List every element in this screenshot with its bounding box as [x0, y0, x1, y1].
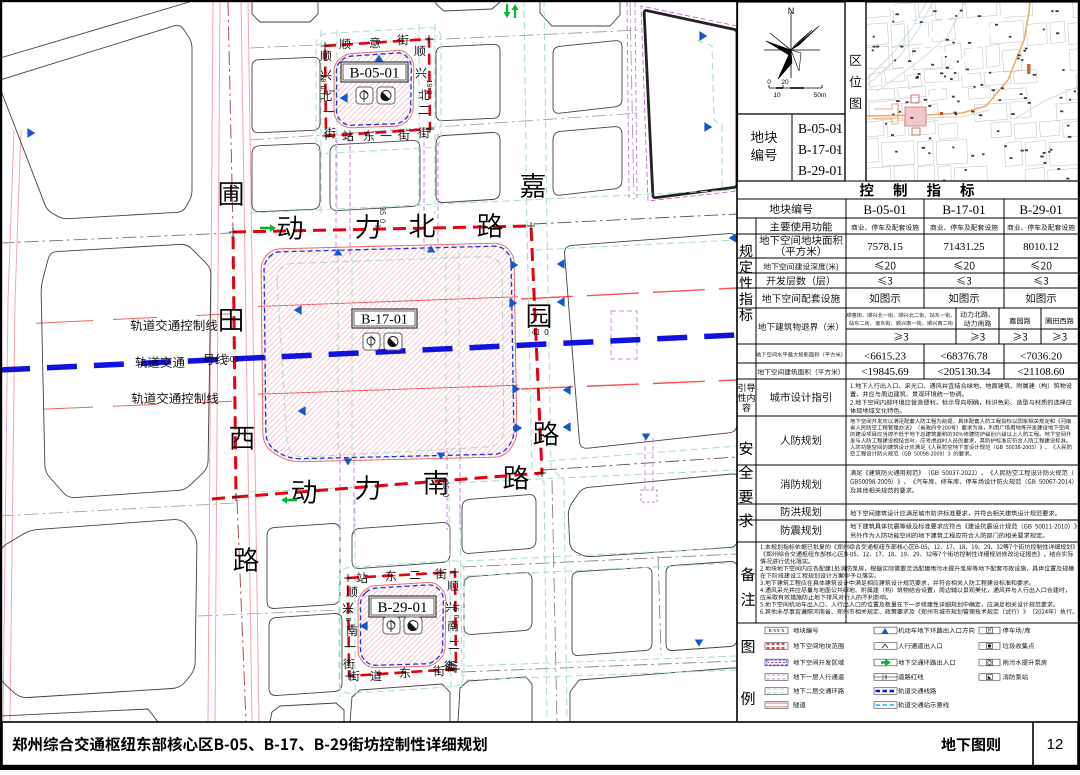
- svg-text:N: N: [788, 6, 795, 16]
- svg-text:<6615.23: <6615.23: [864, 351, 906, 363]
- svg-text:<21108.60: <21108.60: [1017, 366, 1065, 378]
- svg-text:P: P: [988, 628, 991, 633]
- svg-text:B-05-01: B-05-01: [350, 65, 400, 81]
- svg-text:B-29-01: B-29-01: [1019, 202, 1062, 217]
- svg-text:50m: 50m: [814, 92, 827, 99]
- svg-text:B-29-01: B-29-01: [378, 600, 428, 616]
- svg-text:<7036.20: <7036.20: [1020, 351, 1062, 363]
- svg-text:20: 20: [781, 79, 789, 86]
- svg-text:B-05-01: B-05-01: [863, 202, 906, 217]
- svg-text:B-05-01: B-05-01: [798, 121, 843, 136]
- svg-text:10: 10: [773, 92, 781, 99]
- svg-text:0: 0: [767, 79, 771, 86]
- svg-text:7578.15: 7578.15: [867, 241, 903, 253]
- svg-text:B-17-01: B-17-01: [798, 142, 843, 157]
- svg-text:B-XX-X: B-XX-X: [768, 628, 785, 633]
- svg-text:12: 12: [1047, 736, 1064, 753]
- svg-text:B-17-01: B-17-01: [942, 202, 985, 217]
- svg-text:<68376.78: <68376.78: [940, 351, 988, 363]
- svg-text:<205130.34: <205130.34: [938, 366, 991, 378]
- svg-text:8010.12: 8010.12: [1023, 241, 1059, 253]
- svg-text:B-29-01: B-29-01: [798, 163, 843, 178]
- svg-text:<19845.69: <19845.69: [861, 366, 909, 378]
- svg-text:71431.25: 71431.25: [943, 241, 985, 253]
- svg-text:B-17-01: B-17-01: [361, 312, 408, 327]
